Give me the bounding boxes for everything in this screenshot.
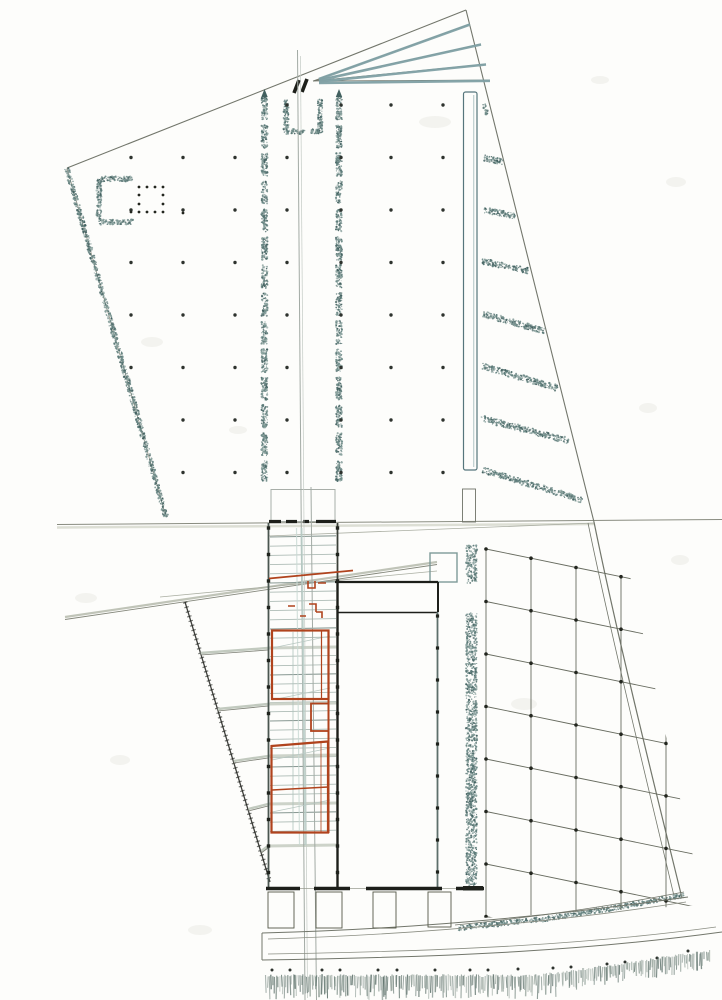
- stipple-dot: [466, 684, 468, 686]
- stipple-dot: [105, 310, 107, 312]
- stipple-dot: [337, 249, 339, 251]
- stipple-dot: [267, 241, 268, 242]
- stipple-dot: [473, 691, 474, 692]
- stipple-dot: [143, 433, 145, 435]
- stipple-dot: [465, 670, 467, 672]
- stipple-dot: [467, 872, 468, 873]
- stipple-dot: [340, 343, 341, 344]
- stipple-dot: [262, 440, 264, 442]
- stipple-dot: [107, 305, 108, 306]
- stipple-dot: [335, 141, 337, 143]
- stipple-dot: [266, 377, 268, 379]
- stipple-dot: [472, 613, 473, 614]
- stipple-dot: [265, 371, 266, 372]
- stipple-dot: [263, 358, 264, 359]
- stipple-dot: [264, 338, 266, 340]
- stipple-dot: [476, 746, 478, 748]
- stipple-dot: [86, 244, 88, 246]
- stipple-dot: [267, 449, 268, 450]
- stipple-dot: [341, 427, 342, 428]
- stipple-dot: [267, 154, 269, 156]
- stipple-dot: [465, 786, 467, 788]
- stipple-dot: [340, 125, 341, 126]
- stipple-dot: [302, 132, 303, 133]
- stipple-dot: [474, 802, 475, 803]
- stipple-dot: [97, 204, 99, 206]
- stipple-dot: [339, 279, 340, 280]
- stipple-dot: [474, 667, 476, 669]
- stipple-dot: [89, 240, 90, 241]
- stipple-dot: [261, 419, 263, 421]
- stipple-dot: [470, 654, 472, 656]
- stipple-dot: [102, 219, 104, 221]
- stipple-dot: [151, 467, 153, 469]
- stipple-dot: [266, 383, 268, 385]
- stipple-dot: [336, 343, 338, 345]
- stipple-dot: [473, 827, 475, 829]
- stipple-dot: [466, 833, 468, 835]
- stipple-dot: [263, 425, 265, 427]
- stipple-dot: [100, 293, 102, 295]
- stipple-dot: [468, 827, 469, 828]
- stipple-dot: [261, 191, 263, 193]
- stipple-dot: [340, 439, 341, 440]
- stipple-dot: [338, 412, 340, 414]
- stipple-dot: [340, 293, 341, 294]
- stipple-dot: [473, 771, 475, 773]
- stipple-dot: [265, 356, 267, 358]
- stipple-dot: [159, 500, 160, 501]
- stipple-dot: [474, 842, 475, 843]
- stipple-dot: [468, 682, 470, 684]
- stipple-dot: [293, 128, 295, 130]
- stipple-dot: [98, 218, 99, 219]
- stipple-dot: [476, 849, 477, 850]
- stipple-dot: [472, 759, 473, 760]
- stipple-dot: [467, 575, 468, 576]
- stipple-dot: [473, 762, 474, 763]
- stipple-dot: [467, 764, 468, 765]
- stipple-dot: [337, 432, 339, 434]
- stipple-dot: [266, 215, 268, 217]
- stipple-dot: [100, 280, 101, 281]
- stipple-dot: [468, 843, 469, 844]
- stipple-dot: [336, 112, 337, 113]
- stipple-dot: [338, 468, 340, 470]
- stipple-dot: [97, 209, 99, 211]
- stipple-dot: [340, 238, 342, 240]
- stipple-dot: [262, 272, 264, 274]
- stipple-dot: [472, 548, 473, 549]
- stipple-dot: [122, 220, 124, 222]
- stipple-dot: [123, 181, 125, 183]
- stipple-dot: [471, 630, 472, 631]
- stipple-dot: [266, 211, 267, 212]
- stipple-dot: [473, 871, 474, 872]
- stipple-dot: [287, 115, 288, 116]
- stipple-dot: [75, 200, 76, 201]
- stipple-dot: [163, 509, 164, 510]
- stipple-dot: [109, 219, 110, 220]
- stipple-dot: [264, 157, 265, 158]
- stipple-dot: [265, 131, 267, 133]
- stipple-dot: [265, 175, 266, 176]
- stipple-dot: [321, 113, 323, 115]
- stipple-dot: [83, 234, 84, 235]
- stipple-dot: [336, 243, 337, 244]
- stipple-dot: [266, 274, 268, 276]
- stipple-dot: [337, 461, 339, 463]
- stipple-dot: [317, 118, 319, 120]
- stipple-dot: [263, 228, 265, 230]
- stipple-dot: [473, 626, 475, 628]
- stipple-dot: [315, 132, 317, 134]
- stipple-dot: [470, 807, 472, 809]
- stipple-dot: [106, 178, 107, 179]
- stipple-dot: [78, 208, 80, 210]
- stipple-dot: [263, 334, 265, 336]
- stipple-dot: [264, 323, 265, 324]
- stipple-dot: [127, 378, 129, 380]
- stipple-dot: [265, 153, 266, 154]
- stipple-dot: [154, 484, 156, 486]
- stipple-dot: [469, 559, 470, 560]
- stipple-dot: [265, 477, 267, 479]
- stipple-dot: [121, 180, 123, 182]
- stipple-dot: [466, 869, 467, 870]
- stipple-dot: [470, 619, 472, 621]
- stipple-dot: [471, 645, 473, 647]
- stipple-dot: [151, 463, 153, 465]
- stipple-dot: [264, 251, 266, 253]
- stipple-dot: [339, 323, 340, 324]
- stipple-dot: [266, 444, 267, 445]
- stipple-dot: [475, 631, 477, 633]
- stipple-dot: [263, 313, 264, 314]
- stipple-dot: [265, 471, 267, 473]
- stipple-dot: [336, 463, 337, 464]
- stipple-dot: [468, 563, 469, 564]
- stipple-dot: [91, 260, 93, 262]
- stipple-dot: [264, 478, 265, 479]
- stipple-dot: [261, 364, 262, 365]
- stipple-dot: [474, 627, 476, 629]
- stipple-dot: [266, 463, 268, 465]
- stipple-dot: [340, 323, 342, 325]
- stipple-dot: [151, 470, 153, 472]
- stipple-dot: [261, 258, 263, 260]
- stipple-dot: [319, 117, 320, 118]
- stipple-dot: [129, 382, 131, 384]
- stipple-dot: [468, 780, 470, 782]
- stipple-dot: [470, 787, 471, 788]
- stipple-dot: [111, 318, 113, 320]
- stipple-dot: [340, 336, 342, 338]
- stipple-dot: [97, 183, 99, 185]
- stipple-dot: [474, 663, 476, 665]
- stipple-dot: [261, 200, 262, 201]
- stipple-dot: [466, 717, 468, 719]
- stipple-dot: [473, 568, 474, 569]
- stipple-dot: [263, 254, 265, 256]
- stipple-dot: [156, 489, 158, 491]
- stipple-dot: [95, 189, 97, 191]
- stipple-dot: [106, 179, 108, 181]
- stipple-dot: [263, 449, 264, 450]
- stipple-dot: [336, 168, 338, 170]
- stipple-dot: [105, 299, 107, 301]
- stipple-dot: [338, 359, 340, 361]
- stipple-dot: [119, 180, 121, 182]
- stipple-dot: [475, 567, 476, 568]
- stipple-dot: [122, 179, 123, 180]
- stipple-dot: [474, 831, 475, 832]
- stipple-dot: [339, 229, 340, 230]
- stipple-dot: [162, 513, 164, 515]
- stipple-dot: [261, 255, 263, 257]
- stipple-dot: [81, 217, 82, 218]
- stipple-dot: [261, 102, 263, 104]
- stipple-dot: [466, 883, 467, 884]
- stipple-dot: [474, 554, 476, 556]
- stipple-dot: [115, 332, 117, 334]
- stipple-dot: [471, 824, 472, 825]
- stipple-dot: [266, 366, 268, 368]
- stipple-dot: [163, 502, 165, 504]
- stipple-dot: [104, 297, 105, 298]
- stipple-dot: [466, 847, 467, 848]
- stipple-dot: [112, 336, 113, 337]
- stipple-dot: [263, 306, 265, 308]
- stipple-dot: [338, 417, 339, 418]
- stipple-dot: [265, 323, 267, 325]
- stipple-dot: [85, 232, 86, 233]
- stipple-dot: [262, 301, 263, 302]
- stipple-dot: [470, 814, 472, 816]
- stipple-dot: [335, 307, 337, 309]
- stipple-dot: [154, 475, 156, 477]
- stipple-dot: [469, 728, 471, 730]
- stipple-dot: [470, 883, 472, 885]
- stipple-dot: [285, 121, 287, 123]
- stipple-dot: [338, 259, 339, 260]
- stipple-dot: [263, 130, 264, 131]
- stipple-dot: [467, 778, 469, 780]
- stipple-dot: [264, 276, 265, 277]
- stipple-dot: [266, 412, 267, 413]
- stipple-dot: [266, 439, 268, 441]
- stipple-dot: [337, 221, 338, 222]
- stipple-dot: [64, 169, 65, 170]
- stipple-dot: [68, 174, 69, 175]
- stipple-dot: [469, 629, 470, 630]
- stipple-dot: [261, 155, 263, 157]
- stipple-dot: [470, 701, 471, 702]
- stipple-dot: [95, 275, 97, 277]
- stipple-dot: [262, 200, 263, 201]
- stipple-dot: [102, 295, 104, 297]
- stipple-dot: [336, 468, 338, 470]
- paper-blotch: [591, 76, 609, 84]
- stipple-dot: [476, 679, 477, 680]
- stipple-dot: [263, 382, 264, 383]
- stipple-dot: [143, 445, 145, 447]
- stipple-dot: [335, 326, 336, 327]
- stipple-dot: [474, 642, 475, 643]
- stipple-dot: [127, 389, 129, 391]
- stipple-dot: [466, 705, 467, 706]
- stipple-dot: [125, 179, 126, 180]
- stipple-dot: [94, 255, 96, 257]
- stipple-dot: [261, 198, 263, 200]
- stipple-dot: [339, 444, 340, 445]
- stipple-dot: [469, 837, 471, 839]
- stipple-dot: [71, 193, 72, 194]
- stipple-dot: [143, 436, 145, 438]
- stipple-dot: [101, 222, 102, 223]
- stipple-dot: [470, 575, 472, 577]
- stipple-dot: [471, 725, 472, 726]
- stipple-dot: [338, 201, 339, 202]
- stipple-dot: [468, 547, 469, 548]
- stipple-dot: [123, 177, 124, 178]
- stipple-dot: [341, 181, 342, 182]
- stipple-dot: [471, 857, 473, 859]
- stipple-dot: [137, 424, 138, 425]
- stipple-dot: [267, 370, 268, 371]
- stipple-dot: [261, 332, 262, 333]
- stipple-dot: [335, 359, 337, 361]
- stipple-dot: [261, 269, 263, 271]
- stipple-dot: [95, 262, 96, 263]
- stipple-dot: [110, 181, 111, 182]
- stipple-dot: [84, 228, 86, 230]
- stipple-dot: [267, 422, 268, 423]
- stipple-dot: [476, 737, 477, 738]
- stipple-dot: [91, 258, 92, 259]
- stipple-dot: [466, 573, 468, 575]
- stipple-dot: [261, 352, 263, 354]
- stipple-dot: [341, 144, 343, 146]
- stipple-dot: [475, 624, 477, 626]
- stipple-dot: [465, 790, 466, 791]
- stipple-dot: [283, 117, 285, 119]
- stipple-dot: [266, 360, 267, 361]
- stipple-dot: [104, 305, 105, 306]
- stipple-dot: [339, 329, 340, 330]
- stipple-dot: [266, 343, 268, 345]
- stipple-dot: [261, 444, 263, 446]
- stipple-dot: [471, 849, 473, 851]
- stipple-dot: [476, 687, 478, 689]
- stipple-dot: [470, 545, 472, 547]
- stipple-dot: [165, 509, 166, 510]
- stipple-dot: [98, 202, 100, 204]
- stipple-dot: [117, 351, 119, 353]
- stipple-dot: [261, 474, 263, 476]
- stipple-dot: [146, 453, 147, 454]
- stipple-dot: [69, 180, 70, 181]
- stipple-dot: [100, 189, 102, 191]
- stipple-dot: [261, 144, 262, 145]
- stipple-dot: [266, 202, 268, 204]
- stipple-dot: [267, 349, 268, 350]
- stipple-dot: [138, 425, 140, 427]
- stipple-dot: [129, 220, 130, 221]
- stipple-dot: [263, 223, 265, 225]
- stipple-dot: [112, 322, 114, 324]
- stipple-dot: [341, 241, 343, 243]
- stipple-dot: [130, 399, 131, 400]
- stipple-dot: [265, 285, 266, 286]
- stipple-dot: [471, 734, 472, 735]
- stipple-dot: [260, 342, 262, 344]
- stipple-dot: [475, 748, 477, 750]
- stipple-dot: [466, 617, 468, 619]
- stipple-dot: [471, 874, 473, 876]
- stipple-dot: [98, 189, 99, 190]
- stipple-dot: [263, 282, 264, 283]
- stipple-dot: [160, 493, 162, 495]
- stipple-dot: [474, 866, 476, 868]
- stipple-dot: [336, 285, 338, 287]
- stipple-dot: [102, 292, 104, 294]
- stipple-dot: [130, 221, 131, 222]
- stipple-dot: [264, 197, 265, 198]
- stipple-dot: [336, 254, 338, 256]
- site-plan-drawing: [0, 0, 722, 1000]
- stipple-dot: [474, 706, 476, 708]
- stipple-dot: [466, 657, 468, 659]
- stipple-dot: [465, 688, 467, 690]
- stipple-dot: [263, 270, 265, 272]
- stipple-dot: [341, 304, 342, 305]
- stipple-dot: [468, 875, 469, 876]
- stipple-dot: [130, 387, 132, 389]
- stipple-dot: [476, 613, 477, 614]
- stipple-dot: [129, 395, 130, 396]
- stipple-dot: [337, 281, 338, 282]
- stipple-dot: [267, 393, 268, 394]
- stipple-dot: [338, 378, 339, 379]
- stipple-dot: [476, 871, 478, 873]
- stipple-dot: [471, 790, 472, 791]
- stipple-dot: [470, 562, 472, 564]
- stipple-dot: [262, 106, 264, 108]
- stipple-dot: [98, 212, 99, 213]
- stipple-dot: [341, 250, 343, 252]
- stipple-dot: [338, 128, 339, 129]
- stipple-dot: [470, 710, 471, 711]
- stipple-dot: [73, 198, 75, 200]
- stipple-dot: [131, 389, 133, 391]
- stipple-dot: [114, 222, 115, 223]
- stipple-dot: [338, 145, 340, 147]
- stipple-dot: [264, 352, 265, 353]
- stipple-dot: [266, 358, 268, 360]
- stipple-dot: [116, 348, 118, 350]
- stipple-dot: [157, 493, 159, 495]
- stipple-dot: [321, 103, 323, 105]
- stipple-dot: [469, 777, 470, 778]
- stipple-dot: [338, 394, 340, 396]
- paper-blotch: [511, 698, 537, 710]
- stipple-dot: [476, 782, 477, 783]
- stipple-dot: [336, 170, 337, 171]
- stipple-dot: [341, 395, 342, 396]
- stipple-dot: [149, 463, 151, 465]
- stipple-dot: [340, 453, 341, 454]
